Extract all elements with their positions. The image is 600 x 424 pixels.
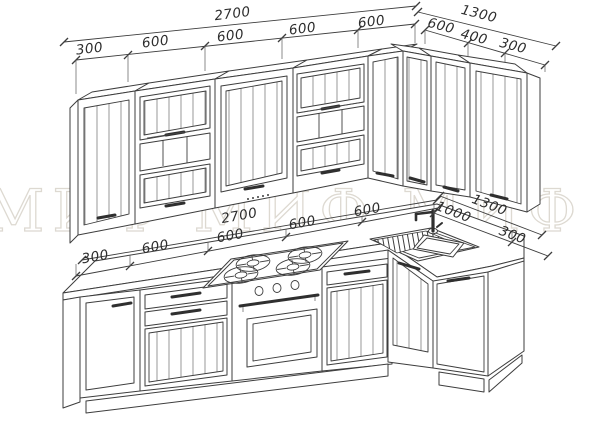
dim-upper-seg: 600 xyxy=(216,26,245,45)
drawing-canvas: МИФ МИФ МИФ МИФ xyxy=(0,0,600,424)
oven-window xyxy=(247,309,317,367)
dim-upper-total: 2700 xyxy=(213,4,251,24)
dim-upper-seg: 600 xyxy=(141,32,170,51)
base-door-cabinet xyxy=(322,258,392,371)
base-drawer-cabinet xyxy=(140,278,232,391)
wall-corner-cabinet xyxy=(368,44,431,191)
base-end-cabinet-left xyxy=(63,290,140,408)
wall-end-cabinet-right xyxy=(458,55,540,212)
kitchen-technical-drawing: МИФ МИФ МИФ МИФ xyxy=(0,0,600,424)
oven xyxy=(232,267,322,381)
dim-upper-seg: 600 xyxy=(288,19,317,38)
dim-upper-return-seg: 400 xyxy=(459,26,489,49)
dim-upper-seg: 600 xyxy=(357,12,386,31)
dim-upper-return-seg: 600 xyxy=(426,15,456,38)
dim-upper-seg: 300 xyxy=(75,39,104,58)
dim-upper-return-total: 1300 xyxy=(459,2,498,26)
